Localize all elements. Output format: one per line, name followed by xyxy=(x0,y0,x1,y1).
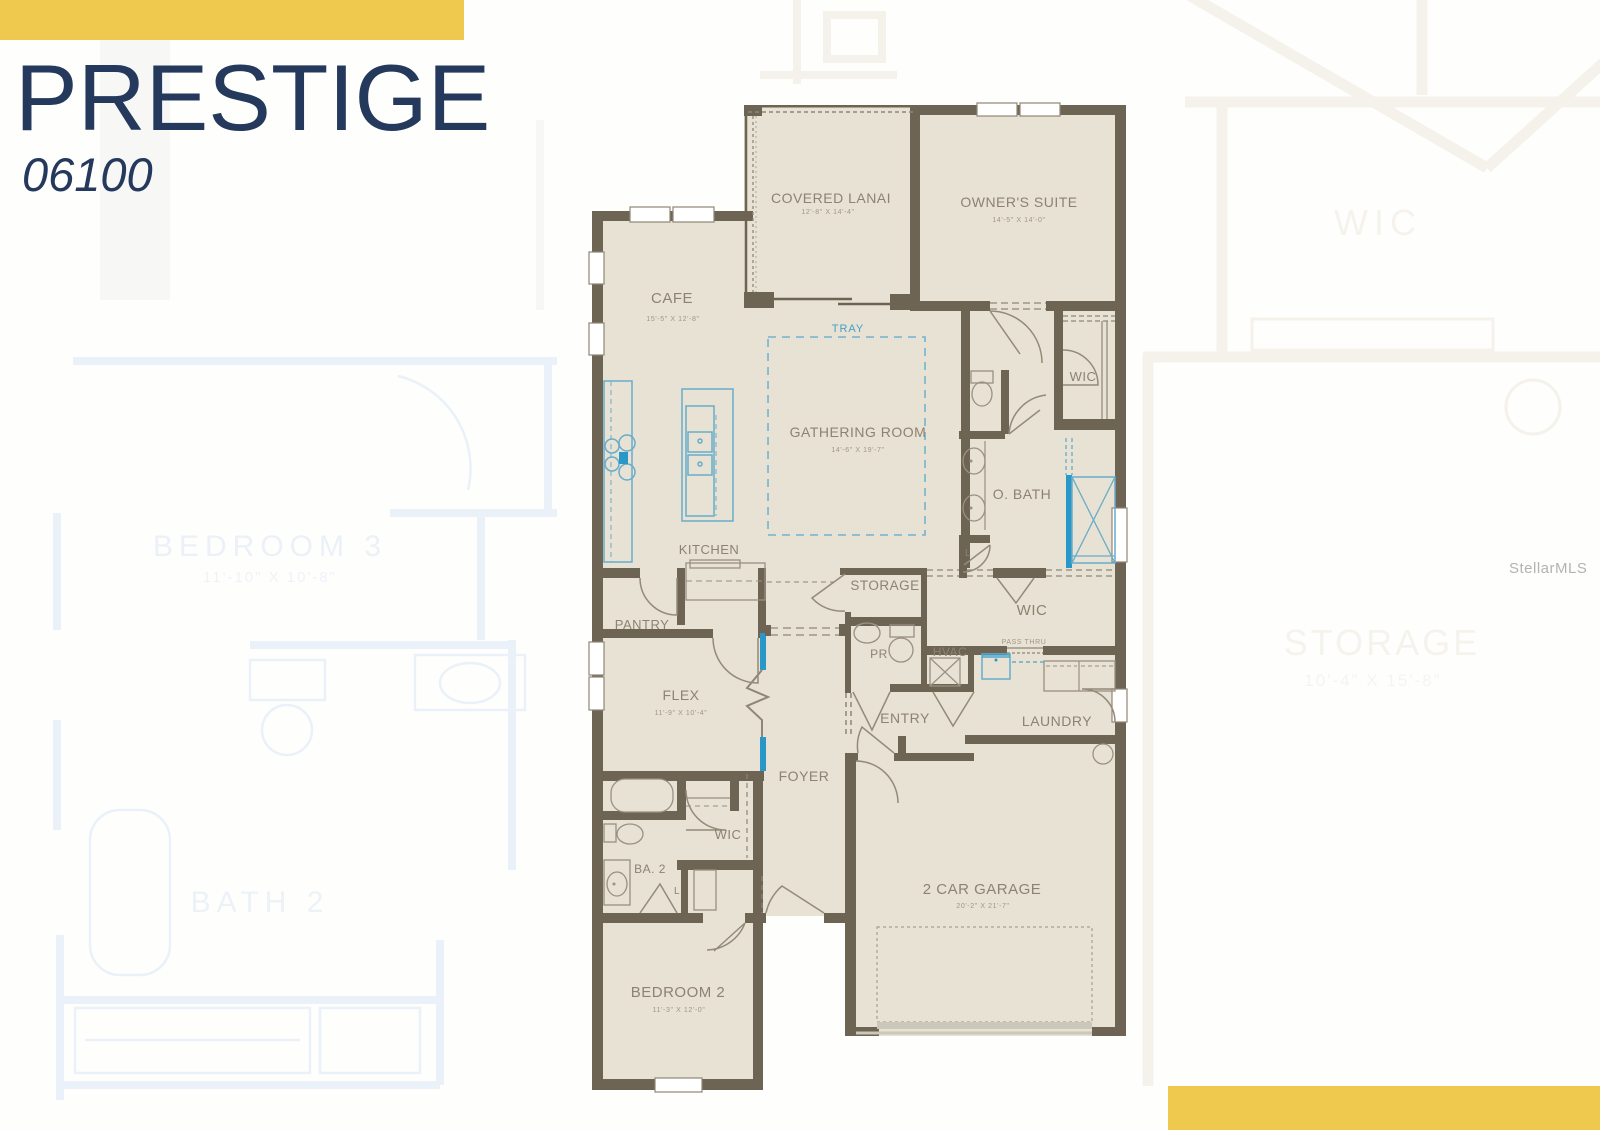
svg-text:PRESTIGE: PRESTIGE xyxy=(15,45,490,150)
svg-text:CAFE: CAFE xyxy=(651,290,693,307)
svg-text:WIC: WIC xyxy=(715,827,742,842)
svg-text:FOYER: FOYER xyxy=(779,768,830,784)
svg-text:20'-2" X 21'-7": 20'-2" X 21'-7" xyxy=(956,903,1009,910)
svg-text:10'-4" X 15'-8": 10'-4" X 15'-8" xyxy=(1304,671,1441,690)
svg-text:LAUNDRY: LAUNDRY xyxy=(1022,713,1092,729)
svg-text:11'-3" X 12'-0": 11'-3" X 12'-0" xyxy=(653,1007,706,1014)
svg-text:L: L xyxy=(965,548,971,559)
svg-text:KITCHEN: KITCHEN xyxy=(679,542,740,557)
svg-text:BATH 2: BATH 2 xyxy=(191,886,330,919)
svg-text:STORAGE: STORAGE xyxy=(850,578,919,593)
svg-text:14'-5" X 14'-0": 14'-5" X 14'-0" xyxy=(992,217,1045,224)
svg-text:14'-6" X 19'-7": 14'-6" X 19'-7" xyxy=(831,447,884,454)
svg-text:12'-8" X 14'-4": 12'-8" X 14'-4" xyxy=(801,209,854,216)
svg-text:WIC: WIC xyxy=(1070,369,1097,384)
svg-text:PANTRY: PANTRY xyxy=(615,617,670,632)
svg-text:BA. 2: BA. 2 xyxy=(634,862,666,876)
svg-text:GATHERING ROOM: GATHERING ROOM xyxy=(790,424,927,440)
svg-text:L: L xyxy=(674,886,680,897)
svg-text:PASS THRU: PASS THRU xyxy=(1002,639,1047,646)
svg-text:BEDROOM 2: BEDROOM 2 xyxy=(631,984,726,1001)
svg-text:STORAGE: STORAGE xyxy=(1284,622,1480,663)
svg-text:11'-9" X 10'-4": 11'-9" X 10'-4" xyxy=(655,710,708,717)
svg-text:O. BATH: O. BATH xyxy=(993,486,1051,502)
svg-text:TRAY: TRAY xyxy=(832,323,865,335)
svg-text:11'-10" X 10'-8": 11'-10" X 10'-8" xyxy=(203,569,337,586)
svg-text:COVERED LANAI: COVERED LANAI xyxy=(771,190,891,206)
svg-text:ENTRY: ENTRY xyxy=(880,710,930,726)
svg-text:FLEX: FLEX xyxy=(662,687,699,703)
svg-text:WIC: WIC xyxy=(1334,202,1422,243)
svg-text:2 CAR GARAGE: 2 CAR GARAGE xyxy=(923,881,1042,898)
svg-text:06100: 06100 xyxy=(22,148,153,201)
svg-text:WIC: WIC xyxy=(1017,602,1048,619)
svg-text:HVAC: HVAC xyxy=(933,645,967,659)
svg-text:BEDROOM 3: BEDROOM 3 xyxy=(153,530,387,563)
svg-text:15'-5" X 12'-8": 15'-5" X 12'-8" xyxy=(646,316,699,323)
svg-text:OWNER'S SUITE: OWNER'S SUITE xyxy=(960,194,1077,210)
svg-text:StellarMLS: StellarMLS xyxy=(1509,560,1587,577)
svg-text:PR: PR xyxy=(870,647,888,661)
